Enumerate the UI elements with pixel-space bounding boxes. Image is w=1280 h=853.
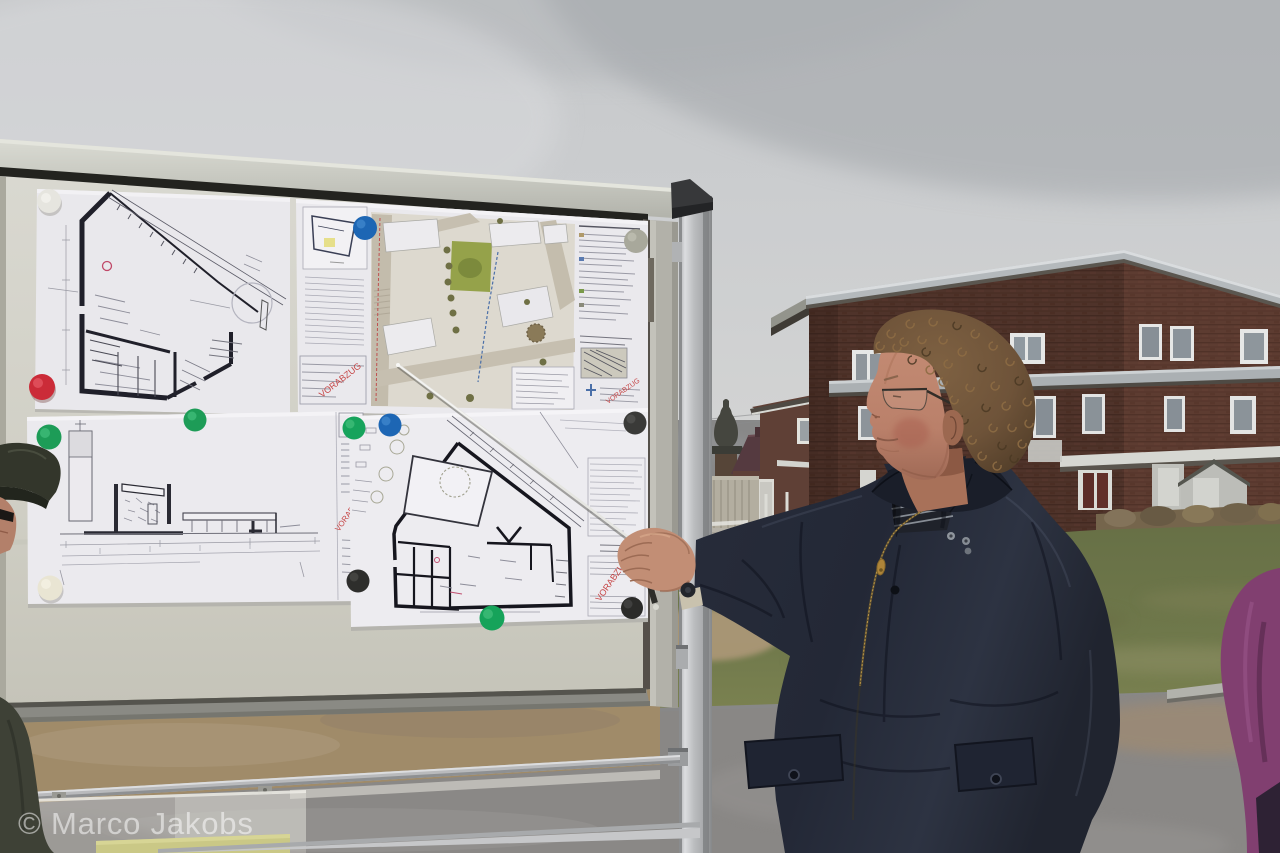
svg-text:© Marco Jakobs: © Marco Jakobs xyxy=(18,806,254,841)
